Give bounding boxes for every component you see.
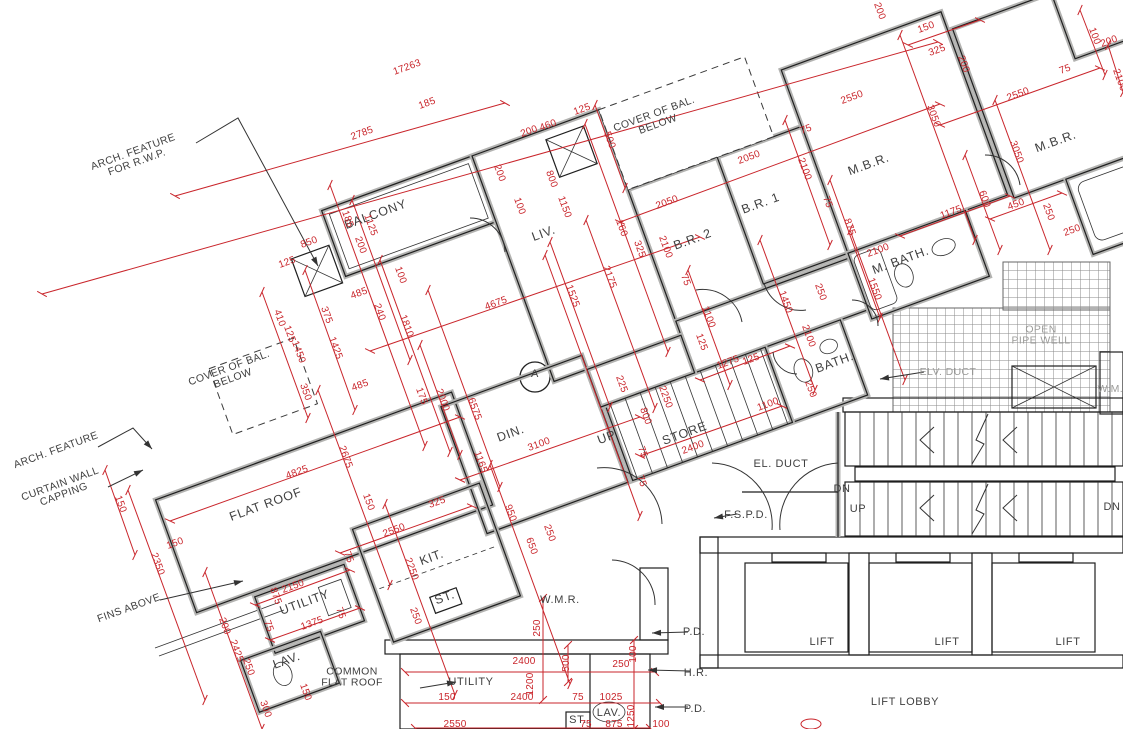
stair-direction-chevron xyxy=(920,495,934,521)
dim-label: 125 xyxy=(693,332,709,352)
dim-label: 75 xyxy=(333,606,347,621)
dim-label: 75 xyxy=(572,692,584,703)
dim-label: 300 xyxy=(257,699,273,719)
dim-label: 75 xyxy=(678,273,692,288)
dim-label: 150 xyxy=(360,492,376,512)
leader-arrowhead xyxy=(714,514,723,520)
lift-3-door xyxy=(1019,553,1073,562)
dim-label: 185 xyxy=(417,95,437,111)
dim-label: 2675 xyxy=(336,444,354,470)
dimension-tick xyxy=(37,291,47,296)
room-label: FLAT ROOF xyxy=(227,485,303,524)
room-label: B.R. 2 xyxy=(672,226,714,253)
open-pipe-well-2 xyxy=(1003,262,1110,310)
core-label: W.M.R. xyxy=(540,594,580,606)
muted-label: ELV. DUCT xyxy=(920,366,977,378)
dim-label: 75 xyxy=(261,619,275,634)
dim-label: 150 xyxy=(438,692,456,703)
dim-label: 1425 xyxy=(326,335,344,361)
core-label: LIFT xyxy=(934,636,959,648)
dim-label: 250 xyxy=(802,379,818,399)
stair-tread xyxy=(760,349,787,424)
annotation-label: FINS ABOVE xyxy=(96,591,163,625)
dim-label: 1550 xyxy=(865,276,883,302)
lift-divider-wall xyxy=(972,553,992,655)
room-master-bedroom xyxy=(781,12,1007,253)
room-label: BATH. xyxy=(813,349,855,376)
core-label: DN xyxy=(1103,501,1120,513)
dim-label: 150 xyxy=(112,494,128,514)
dim-label: 225 xyxy=(613,374,629,394)
dim-label: 240 xyxy=(371,302,387,322)
text-labels-layer: BALCONYLIV.DIN.B.R. 2B.R. 1M.B.R.M.B.R.M… xyxy=(12,1,1123,729)
dim-label: 325 xyxy=(927,42,947,58)
leader-arrowhead xyxy=(655,704,664,710)
core-label: DN xyxy=(833,483,850,495)
dimension-line xyxy=(760,240,815,390)
dim-label: 200 xyxy=(491,163,507,183)
stair-mid-landing xyxy=(855,467,1115,481)
dim-label: 2400 xyxy=(512,656,535,667)
stair-flight-lower xyxy=(845,482,1123,536)
lift-2-door xyxy=(896,553,950,562)
lobby-wall-top xyxy=(700,537,1123,553)
room-label: LIV. xyxy=(530,223,558,244)
dim-label: 2400 xyxy=(510,692,533,703)
room-label: ST. xyxy=(433,587,457,607)
core-label: P.D. xyxy=(683,626,705,638)
dimension-line xyxy=(380,260,450,452)
dim-label: 17263 xyxy=(392,57,423,77)
dim-label: 375 xyxy=(318,305,334,325)
leader-arrowhead xyxy=(880,375,889,381)
dim-label: 450 xyxy=(1006,196,1026,212)
dim-label: 1250 xyxy=(626,704,637,727)
dim-label: 6575 xyxy=(465,396,483,422)
dim-label: 250 xyxy=(407,606,423,626)
dim-label: 485 xyxy=(350,377,370,393)
lift-divider-wall xyxy=(849,553,869,655)
dimension-line xyxy=(175,103,505,196)
hr-nook-wall xyxy=(640,568,668,640)
dim-label: 2100 xyxy=(656,234,674,260)
dim-label: 200 xyxy=(216,616,232,636)
door-swing-arc xyxy=(773,352,797,374)
dim-label: 2100 xyxy=(1110,67,1123,93)
dim-label: 875 xyxy=(605,719,623,729)
dim-label: 2550 xyxy=(1005,85,1031,103)
dim-label: 2250 xyxy=(402,556,420,582)
dim-label: 250 xyxy=(532,619,543,637)
core-label: P.D. xyxy=(684,703,706,715)
core-label: LIFT xyxy=(1055,636,1080,648)
utility-wall-top xyxy=(385,640,668,654)
floor-plan-canvas: BALCONYLIV.DIN.B.R. 2B.R. 1M.B.R.M.B.R.M… xyxy=(0,0,1123,729)
dim-label: 2350 xyxy=(148,551,166,577)
dim-label: 2550 xyxy=(443,719,466,729)
dim-label: 200 xyxy=(871,1,887,21)
dim-label: 1025 xyxy=(599,692,622,703)
dim-label: 460 xyxy=(538,117,558,133)
annotation-label: COMMONFLAT ROOF xyxy=(321,666,383,689)
core-label: UP xyxy=(850,503,866,515)
core-label: LIFT xyxy=(809,636,834,648)
stair-tread xyxy=(715,365,742,440)
dim-label: 1165 xyxy=(471,450,489,475)
room-label: M.B.R. xyxy=(1033,127,1078,155)
dim-label: 2100 xyxy=(795,156,813,182)
core-label: LAV. xyxy=(597,707,621,719)
dimension-line xyxy=(340,506,472,553)
muted-label: W.M.R. xyxy=(1098,383,1123,395)
dim-label: 1450 xyxy=(776,289,794,315)
dim-label: 200 xyxy=(1099,33,1119,49)
dim-label: 2175 xyxy=(600,264,618,290)
leader-arrowhead xyxy=(311,257,318,266)
dim-label: 500 xyxy=(561,654,572,672)
dim-label: 1175 xyxy=(939,204,964,222)
dim-label: 250 xyxy=(812,282,828,302)
dim-label: 3050 xyxy=(1007,139,1025,165)
room-label: B.R. 1 xyxy=(740,190,782,217)
lobby-wall-left xyxy=(700,537,718,668)
leader-line xyxy=(98,428,152,449)
dim-label: 4675 xyxy=(483,294,509,312)
annotation-label: ARCH. FEATURE xyxy=(12,429,100,471)
dimension-line xyxy=(128,490,205,700)
dim-label: 2550 xyxy=(839,88,865,106)
room-label: DIN. xyxy=(495,422,526,445)
stair-flight-upper xyxy=(845,412,1123,466)
core-label: EL. DUCT xyxy=(754,458,809,470)
dim-label: 75 xyxy=(580,719,592,729)
dimension-line xyxy=(640,406,782,456)
core-label: LIFT LOBBY xyxy=(871,696,939,708)
dim-label: 4825 xyxy=(284,463,310,481)
dim-label: 2785 xyxy=(349,124,375,142)
lift-1-door xyxy=(772,553,826,562)
dim-label: 75 xyxy=(1058,62,1073,76)
open-pipe-well xyxy=(893,308,1110,412)
dim-label: 250 xyxy=(1062,222,1082,238)
basin xyxy=(930,235,958,258)
room-dining-room-2 xyxy=(587,335,695,407)
leader-line xyxy=(160,581,243,600)
core-label: UTILITY xyxy=(448,676,493,688)
core-label: H.R. xyxy=(684,667,708,679)
dimension-line xyxy=(490,465,570,684)
leader-arrowhead xyxy=(134,470,143,477)
dim-label: 250 xyxy=(1040,202,1056,222)
dim-label: 100 xyxy=(628,645,639,663)
dim-label: 100 xyxy=(392,265,408,285)
flat-marker-letter: A xyxy=(531,368,539,380)
dim-label: 3100 xyxy=(526,435,552,453)
stair-tread xyxy=(730,360,757,435)
red-cloud-mark xyxy=(801,719,821,729)
leader-arrowhead xyxy=(652,630,661,636)
dim-label: 1810 xyxy=(397,313,415,339)
dimension-tick xyxy=(500,100,510,105)
dim-label: 485 xyxy=(349,285,369,301)
door-swing-arc xyxy=(612,560,655,605)
dim-label: 100 xyxy=(652,719,670,729)
core-label: F.S.P.D. xyxy=(724,509,768,521)
annotation-label: CURTAIN WALLCAPPING xyxy=(20,464,105,514)
door-swing-arc xyxy=(780,463,838,530)
room-teal-bath xyxy=(1066,135,1123,255)
lobby-wall-bottom xyxy=(700,655,1123,668)
dim-label: 1150 xyxy=(555,195,573,220)
dim-label: 75 xyxy=(635,445,649,460)
dim-label: 250 xyxy=(541,523,557,543)
dim-label: 200 xyxy=(519,123,539,139)
dim-label: 100 xyxy=(511,196,527,216)
stair-direction-chevron xyxy=(920,427,934,453)
stair-direction-chevron xyxy=(1003,427,1017,453)
stair-direction-chevron xyxy=(1003,495,1017,521)
leader-arrowhead xyxy=(234,580,243,586)
dim-label: 3050 xyxy=(924,103,942,129)
dim-label: 2050 xyxy=(654,193,680,211)
room-teal-corner xyxy=(1048,0,1123,59)
annotation-label: ARCH. FEATUREFOR R.W.P. xyxy=(89,131,181,183)
floor-plan-drawing: BALCONYLIV.DIN.B.R. 2B.R. 1M.B.R.M.B.R.M… xyxy=(0,0,1123,729)
dim-label: 1525 xyxy=(563,283,581,309)
dim-label: 160 xyxy=(613,218,629,238)
dimension-tick xyxy=(170,193,180,198)
dim-label: 650 xyxy=(523,536,539,556)
room-label: M.B.R. xyxy=(846,150,891,178)
room-label: KIT. xyxy=(418,546,446,568)
